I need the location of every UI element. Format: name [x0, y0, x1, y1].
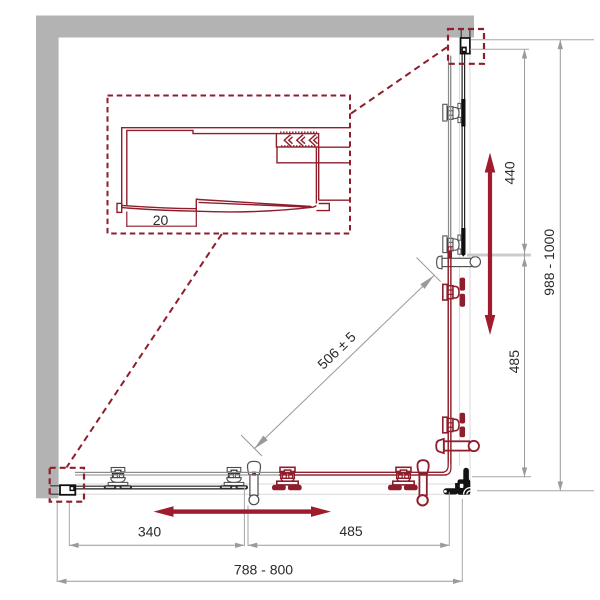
svg-text:988 - 1000: 988 - 1000 — [541, 229, 557, 296]
svg-text:788 - 800: 788 - 800 — [234, 562, 293, 578]
svg-text:20: 20 — [153, 212, 169, 228]
svg-text:440: 440 — [502, 161, 518, 185]
svg-text:485: 485 — [339, 523, 363, 539]
svg-text:340: 340 — [138, 524, 162, 540]
svg-text:485: 485 — [506, 350, 522, 374]
